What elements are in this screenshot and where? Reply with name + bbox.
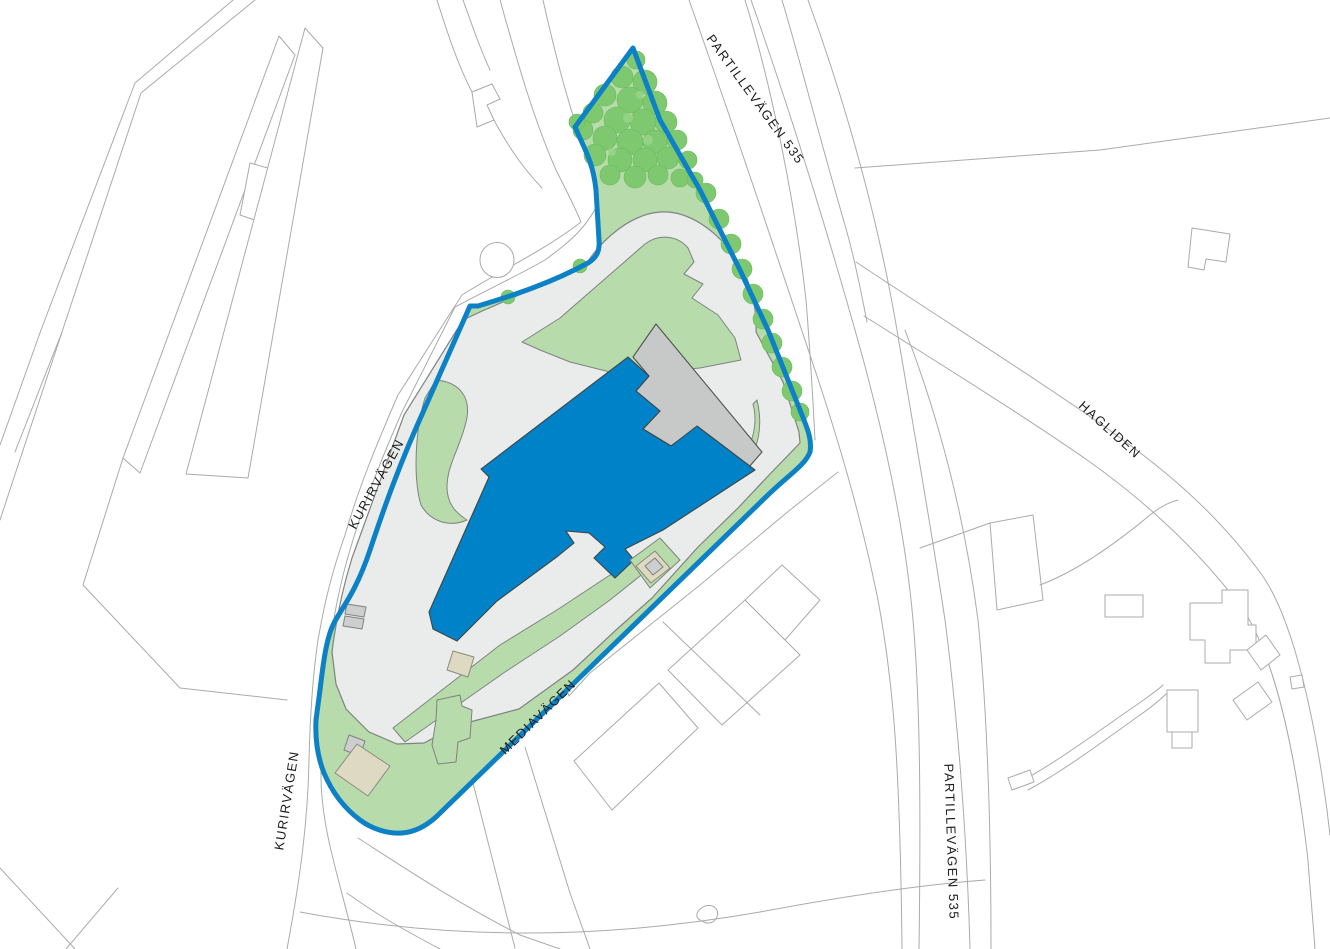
context-north-fork [437, 0, 542, 188]
road-hagliden [856, 262, 1330, 949]
map-canvas: PARTILLEVÄGEN 535 KURIRVÄGEN KURIRVÄGEN … [0, 0, 1330, 949]
context-fields-east [855, 118, 1330, 610]
context-parcels-northwest [0, 0, 323, 949]
street-label-partillevagen-north: PARTILLEVÄGEN 535 [704, 32, 808, 167]
context-buildings-farright [1008, 590, 1304, 790]
street-label-hagliden: HAGLIDEN [1076, 398, 1144, 462]
site-plan-map: PARTILLEVÄGEN 535 KURIRVÄGEN KURIRVÄGEN … [0, 0, 1330, 949]
street-label-partillevagen-south: PARTILLEVÄGEN 535 [941, 763, 961, 920]
street-label-kurirvagen-south: KURIRVÄGEN [271, 749, 302, 851]
roundabout-ellipse [480, 243, 514, 278]
